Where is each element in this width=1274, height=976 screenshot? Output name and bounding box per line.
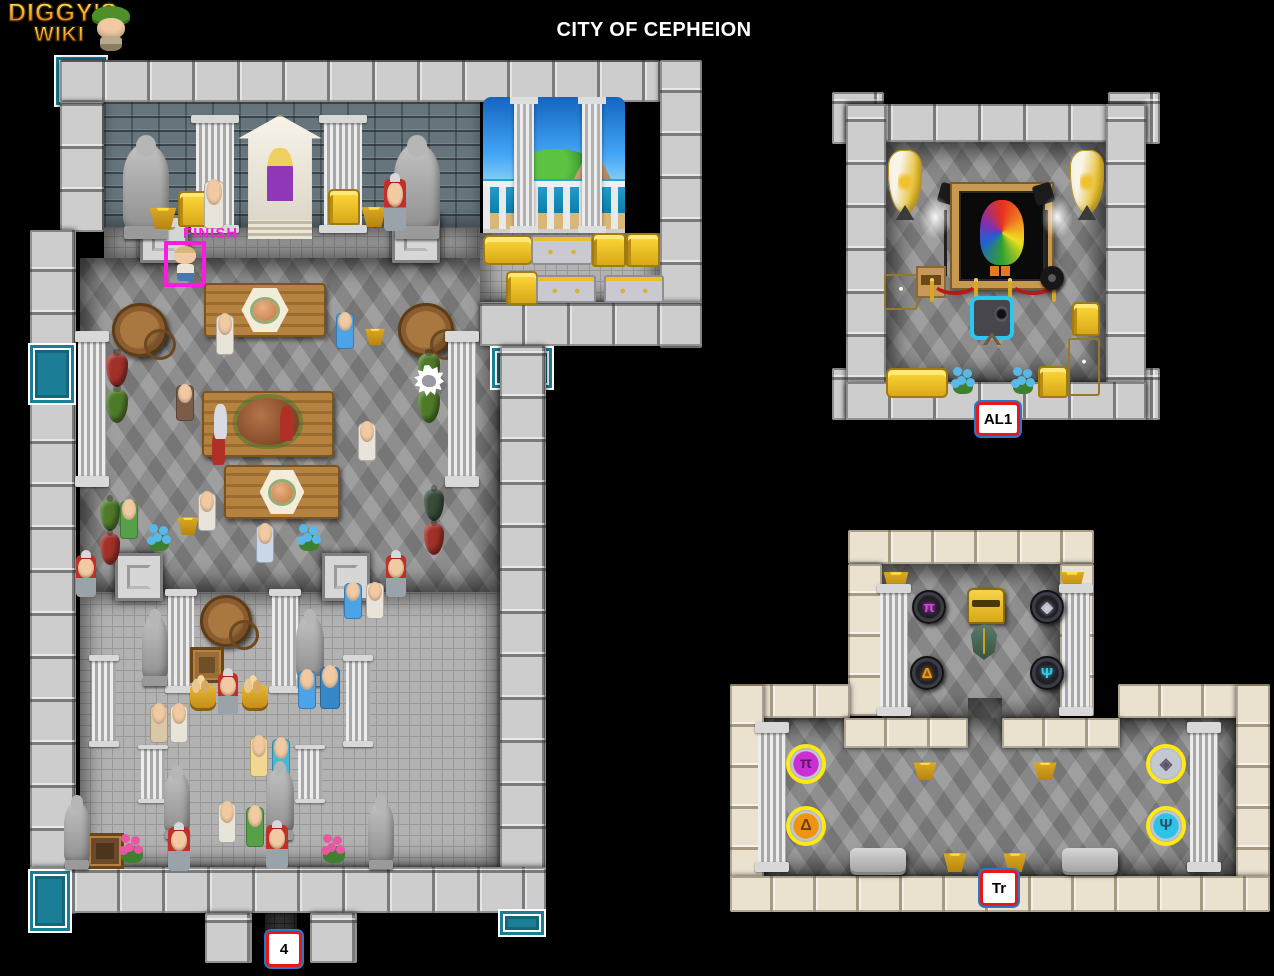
- medallion-diamond: ◈: [1030, 590, 1064, 624]
- exit-tr: Tr: [980, 870, 1018, 906]
- page-title: CITY OF CEPHEION: [557, 19, 752, 42]
- statue: [368, 801, 394, 865]
- gold-armchair: [626, 233, 660, 267]
- gold-chair: [328, 189, 360, 225]
- medallion-psi: Ψ: [1030, 656, 1064, 690]
- gold-armchair: [1038, 366, 1068, 398]
- statue: [64, 801, 90, 865]
- pink-flowers: [118, 833, 146, 863]
- stone-bench: [1062, 848, 1118, 872]
- statue: [142, 615, 168, 681]
- villager: [250, 737, 268, 777]
- blue-flowers: [296, 523, 322, 551]
- column: [1190, 722, 1218, 872]
- wine-jug: [100, 533, 120, 565]
- blue-flowers: [950, 366, 976, 394]
- column: [141, 745, 165, 803]
- gold-pedestal: [1068, 338, 1100, 396]
- emblem-delta: Δ: [790, 810, 822, 842]
- bread-brazier: [190, 685, 216, 711]
- emblem-psi: Ψ: [1150, 810, 1182, 842]
- spotlight: [1032, 184, 1076, 276]
- rope-barrier: [930, 278, 980, 304]
- spartan-guard: [218, 673, 238, 715]
- bread-brazier: [242, 685, 268, 711]
- wine-jug: [424, 523, 444, 555]
- spartan-guard: [386, 555, 406, 597]
- villager: [176, 385, 194, 421]
- gold-brazier: [912, 752, 938, 780]
- gold-bench: [1072, 302, 1100, 336]
- emblem-diamond: ◈: [1150, 748, 1182, 780]
- wine-jug: [106, 353, 128, 387]
- camera-tripod: [974, 300, 1010, 336]
- gold-couch: [483, 235, 533, 265]
- fire-pot: [176, 507, 200, 535]
- column: [298, 745, 322, 803]
- finish-diggy: [168, 245, 202, 283]
- column: [92, 655, 116, 747]
- villager: [198, 493, 216, 531]
- gold-plaque: [884, 274, 918, 310]
- blue-flowers: [146, 523, 172, 551]
- shield: [970, 624, 998, 660]
- pink-flowers: [320, 833, 348, 863]
- villager: [150, 705, 168, 743]
- main-map: FINISH4: [28, 55, 700, 967]
- villager: [218, 803, 236, 843]
- treasure-chest: [967, 588, 1005, 624]
- gold-brazier: [1032, 752, 1058, 780]
- medallion-delta: Δ: [910, 656, 944, 690]
- diggy-mascot-icon: [92, 6, 130, 52]
- villager: [170, 705, 188, 743]
- boar-feast-table: [202, 391, 334, 457]
- villager: [246, 807, 264, 847]
- column: [880, 584, 908, 716]
- column: [1062, 584, 1090, 716]
- exit-4: 4: [266, 931, 302, 967]
- gold-brazier: [942, 842, 968, 872]
- wine-jug: [424, 489, 444, 521]
- wine-jug: [418, 389, 440, 423]
- emblem-pi: π: [790, 748, 822, 780]
- spartan-guard: [384, 179, 406, 231]
- fire-pot: [364, 319, 386, 345]
- blue-flowers: [1010, 366, 1036, 394]
- gold-armchair: [592, 233, 626, 267]
- barrel-cart: [200, 595, 252, 647]
- film-reel: [1040, 266, 1064, 290]
- villager: [336, 313, 354, 349]
- throne-altar: [238, 115, 322, 239]
- barrel-cart: [112, 303, 168, 357]
- villager: [216, 315, 234, 355]
- gold-couch: [886, 368, 948, 398]
- villager: [366, 583, 384, 619]
- villager: [298, 671, 316, 709]
- column: [272, 589, 298, 693]
- column: [758, 722, 786, 872]
- exit-al1: AL1: [976, 402, 1020, 436]
- wine-jug: [106, 389, 128, 423]
- priest: [204, 181, 224, 229]
- finish-label: FINISH: [183, 223, 273, 243]
- spartan-guard: [76, 555, 96, 597]
- column: [448, 331, 476, 487]
- gold-cabinet: [604, 275, 664, 303]
- wine-jug: [100, 499, 120, 531]
- villager: [344, 583, 362, 619]
- gold-brazier: [1002, 842, 1028, 872]
- medallion-pi: π: [912, 590, 946, 624]
- trophy-map: π◈ΔΨπΔ◈ΨTr: [730, 530, 1270, 912]
- stone-bench: [850, 848, 906, 872]
- pig-table: [224, 465, 340, 519]
- column: [346, 655, 370, 747]
- villager: [256, 525, 274, 563]
- gallery-map: AL1: [830, 90, 1162, 432]
- gold-armchair: [506, 271, 538, 305]
- gold-cabinet: [531, 235, 593, 265]
- villager: [320, 667, 340, 709]
- villager: [120, 501, 138, 539]
- villager: [358, 423, 376, 461]
- column: [78, 331, 106, 487]
- spartan-guard: [168, 827, 190, 871]
- gold-cabinet: [536, 275, 596, 303]
- spartan-guard: [266, 825, 288, 869]
